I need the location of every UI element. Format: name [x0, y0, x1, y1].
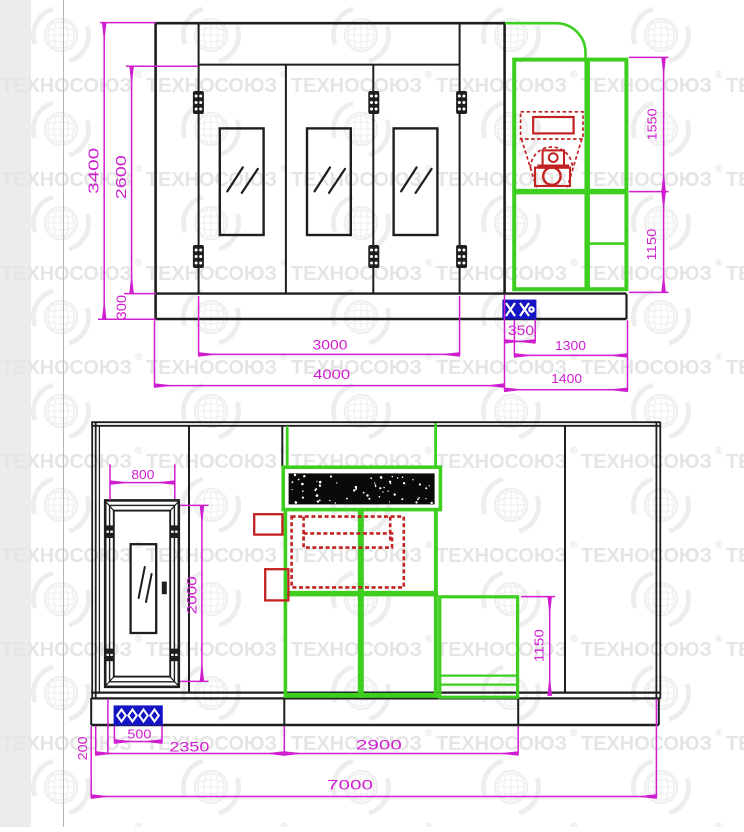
- svg-text:500: 500: [127, 727, 151, 742]
- svg-text:1150: 1150: [532, 629, 547, 662]
- svg-text:1550: 1550: [645, 108, 660, 140]
- svg-text:800: 800: [131, 467, 154, 482]
- svg-text:2900: 2900: [356, 738, 402, 753]
- svg-text:2000: 2000: [184, 576, 199, 614]
- svg-text:7000: 7000: [327, 777, 373, 792]
- svg-text:2600: 2600: [113, 155, 130, 199]
- svg-text:4000: 4000: [313, 367, 350, 382]
- svg-text:3000: 3000: [313, 337, 348, 352]
- svg-text:350: 350: [508, 323, 534, 338]
- svg-text:200: 200: [75, 736, 90, 760]
- svg-text:1150: 1150: [644, 229, 659, 261]
- svg-text:1400: 1400: [551, 371, 582, 386]
- svg-text:2350: 2350: [169, 740, 209, 755]
- svg-text:3400: 3400: [86, 148, 103, 194]
- svg-text:300: 300: [114, 295, 129, 320]
- svg-text:1300: 1300: [555, 338, 586, 353]
